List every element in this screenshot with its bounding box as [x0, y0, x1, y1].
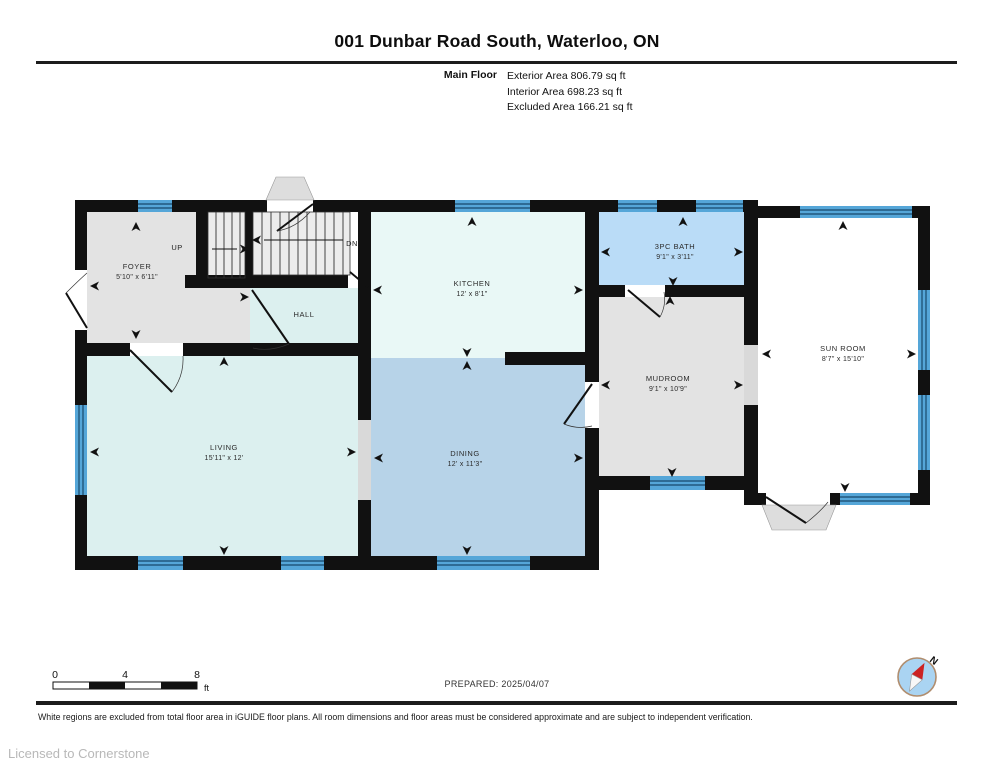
stair-down-label: DN	[346, 239, 358, 248]
prepared-date: PREPARED: 2025/04/07	[0, 679, 994, 689]
window	[918, 395, 930, 470]
window	[650, 476, 705, 490]
window	[75, 405, 87, 495]
disclaimer-text: White regions are excluded from total fl…	[38, 712, 958, 722]
label-hall: HALL	[294, 310, 315, 319]
window	[618, 200, 657, 212]
stair-up-label: UP	[171, 243, 182, 252]
stair-up-area	[208, 212, 245, 278]
window	[918, 290, 930, 370]
license-text: Licensed to Cornerstone	[8, 746, 150, 761]
window	[840, 493, 910, 505]
footer-divider	[36, 701, 957, 705]
opening-living-dining	[358, 420, 371, 500]
opening-mudroom-sunroom	[744, 345, 758, 405]
window	[800, 206, 912, 218]
window	[455, 200, 530, 212]
window	[138, 556, 183, 570]
compass: N	[898, 655, 940, 696]
window	[281, 556, 324, 570]
floor-plan: UP DN	[0, 0, 994, 768]
stair-down-area	[253, 212, 350, 275]
window	[138, 200, 172, 212]
window	[437, 556, 530, 570]
window	[696, 200, 743, 212]
